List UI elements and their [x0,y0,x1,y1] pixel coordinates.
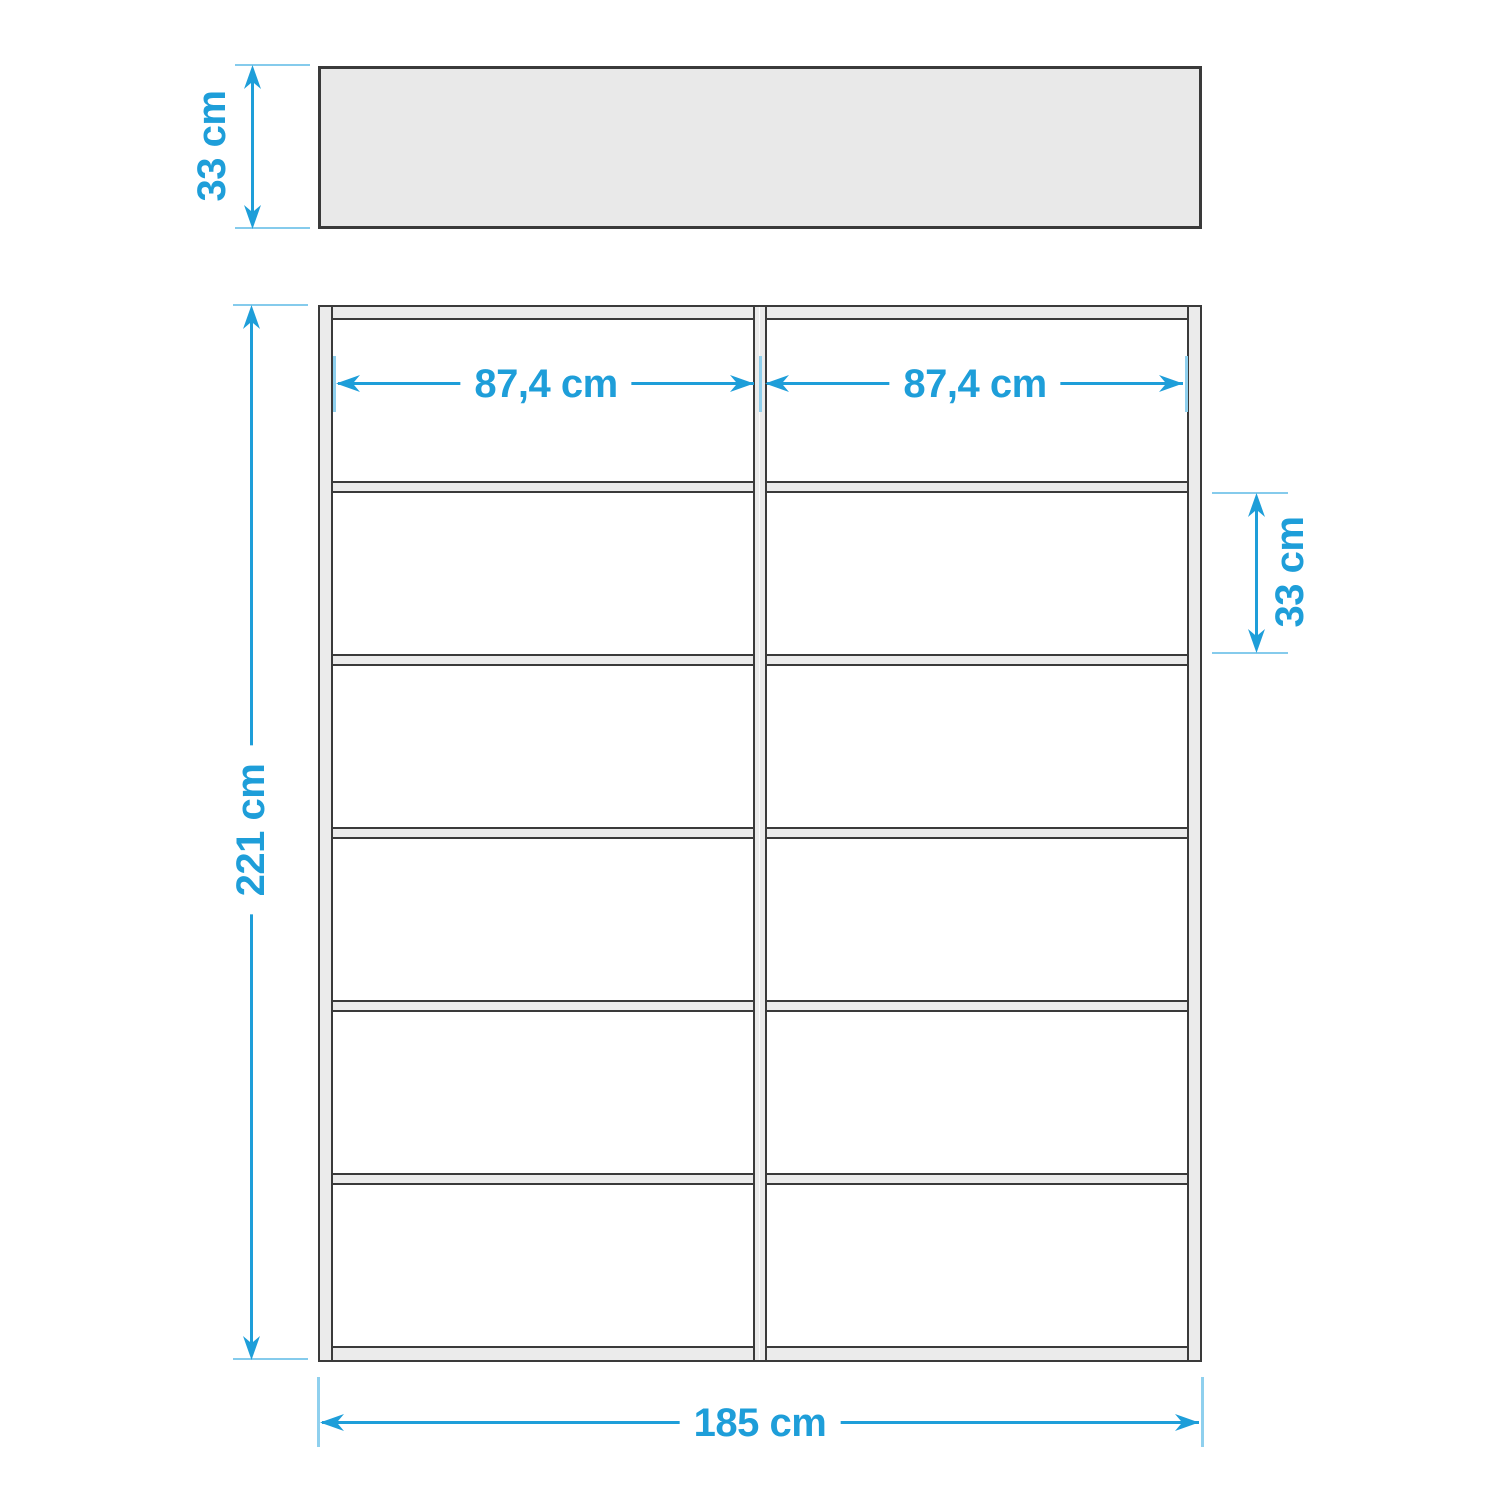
extension-tick [317,1377,320,1447]
compartment-height-label: 33 cm [1270,517,1310,628]
extension-tick [333,356,336,412]
total-width-label: 185 cm [680,1399,841,1447]
extension-line [233,1358,308,1360]
plan-view-slab [318,66,1202,229]
extension-tick [759,356,762,412]
extension-line [1212,492,1288,494]
extension-line [233,304,308,306]
right-side-panel [1187,307,1200,1360]
dimension-line-compartment-height [1255,497,1258,648]
extension-line [235,227,310,229]
dimension-line-plan-depth [251,70,254,225]
right-compartment-width-label: 87,4 cm [889,360,1060,408]
center-divider-panel [753,307,767,1360]
left-side-panel [320,307,333,1360]
plan-depth-label: 33 cm [192,91,232,202]
extension-line [1212,652,1288,654]
front-view-shelf [318,305,1202,1362]
extension-line [235,64,310,66]
dimension-diagram: 33 cm 221 cm 87,4 cm 87,4 cm 33 cm 185 c… [0,0,1500,1500]
extension-tick [1201,1377,1204,1447]
extension-tick [1185,356,1188,412]
left-compartment-width-label: 87,4 cm [460,360,631,408]
total-height-label: 221 cm [227,746,275,915]
